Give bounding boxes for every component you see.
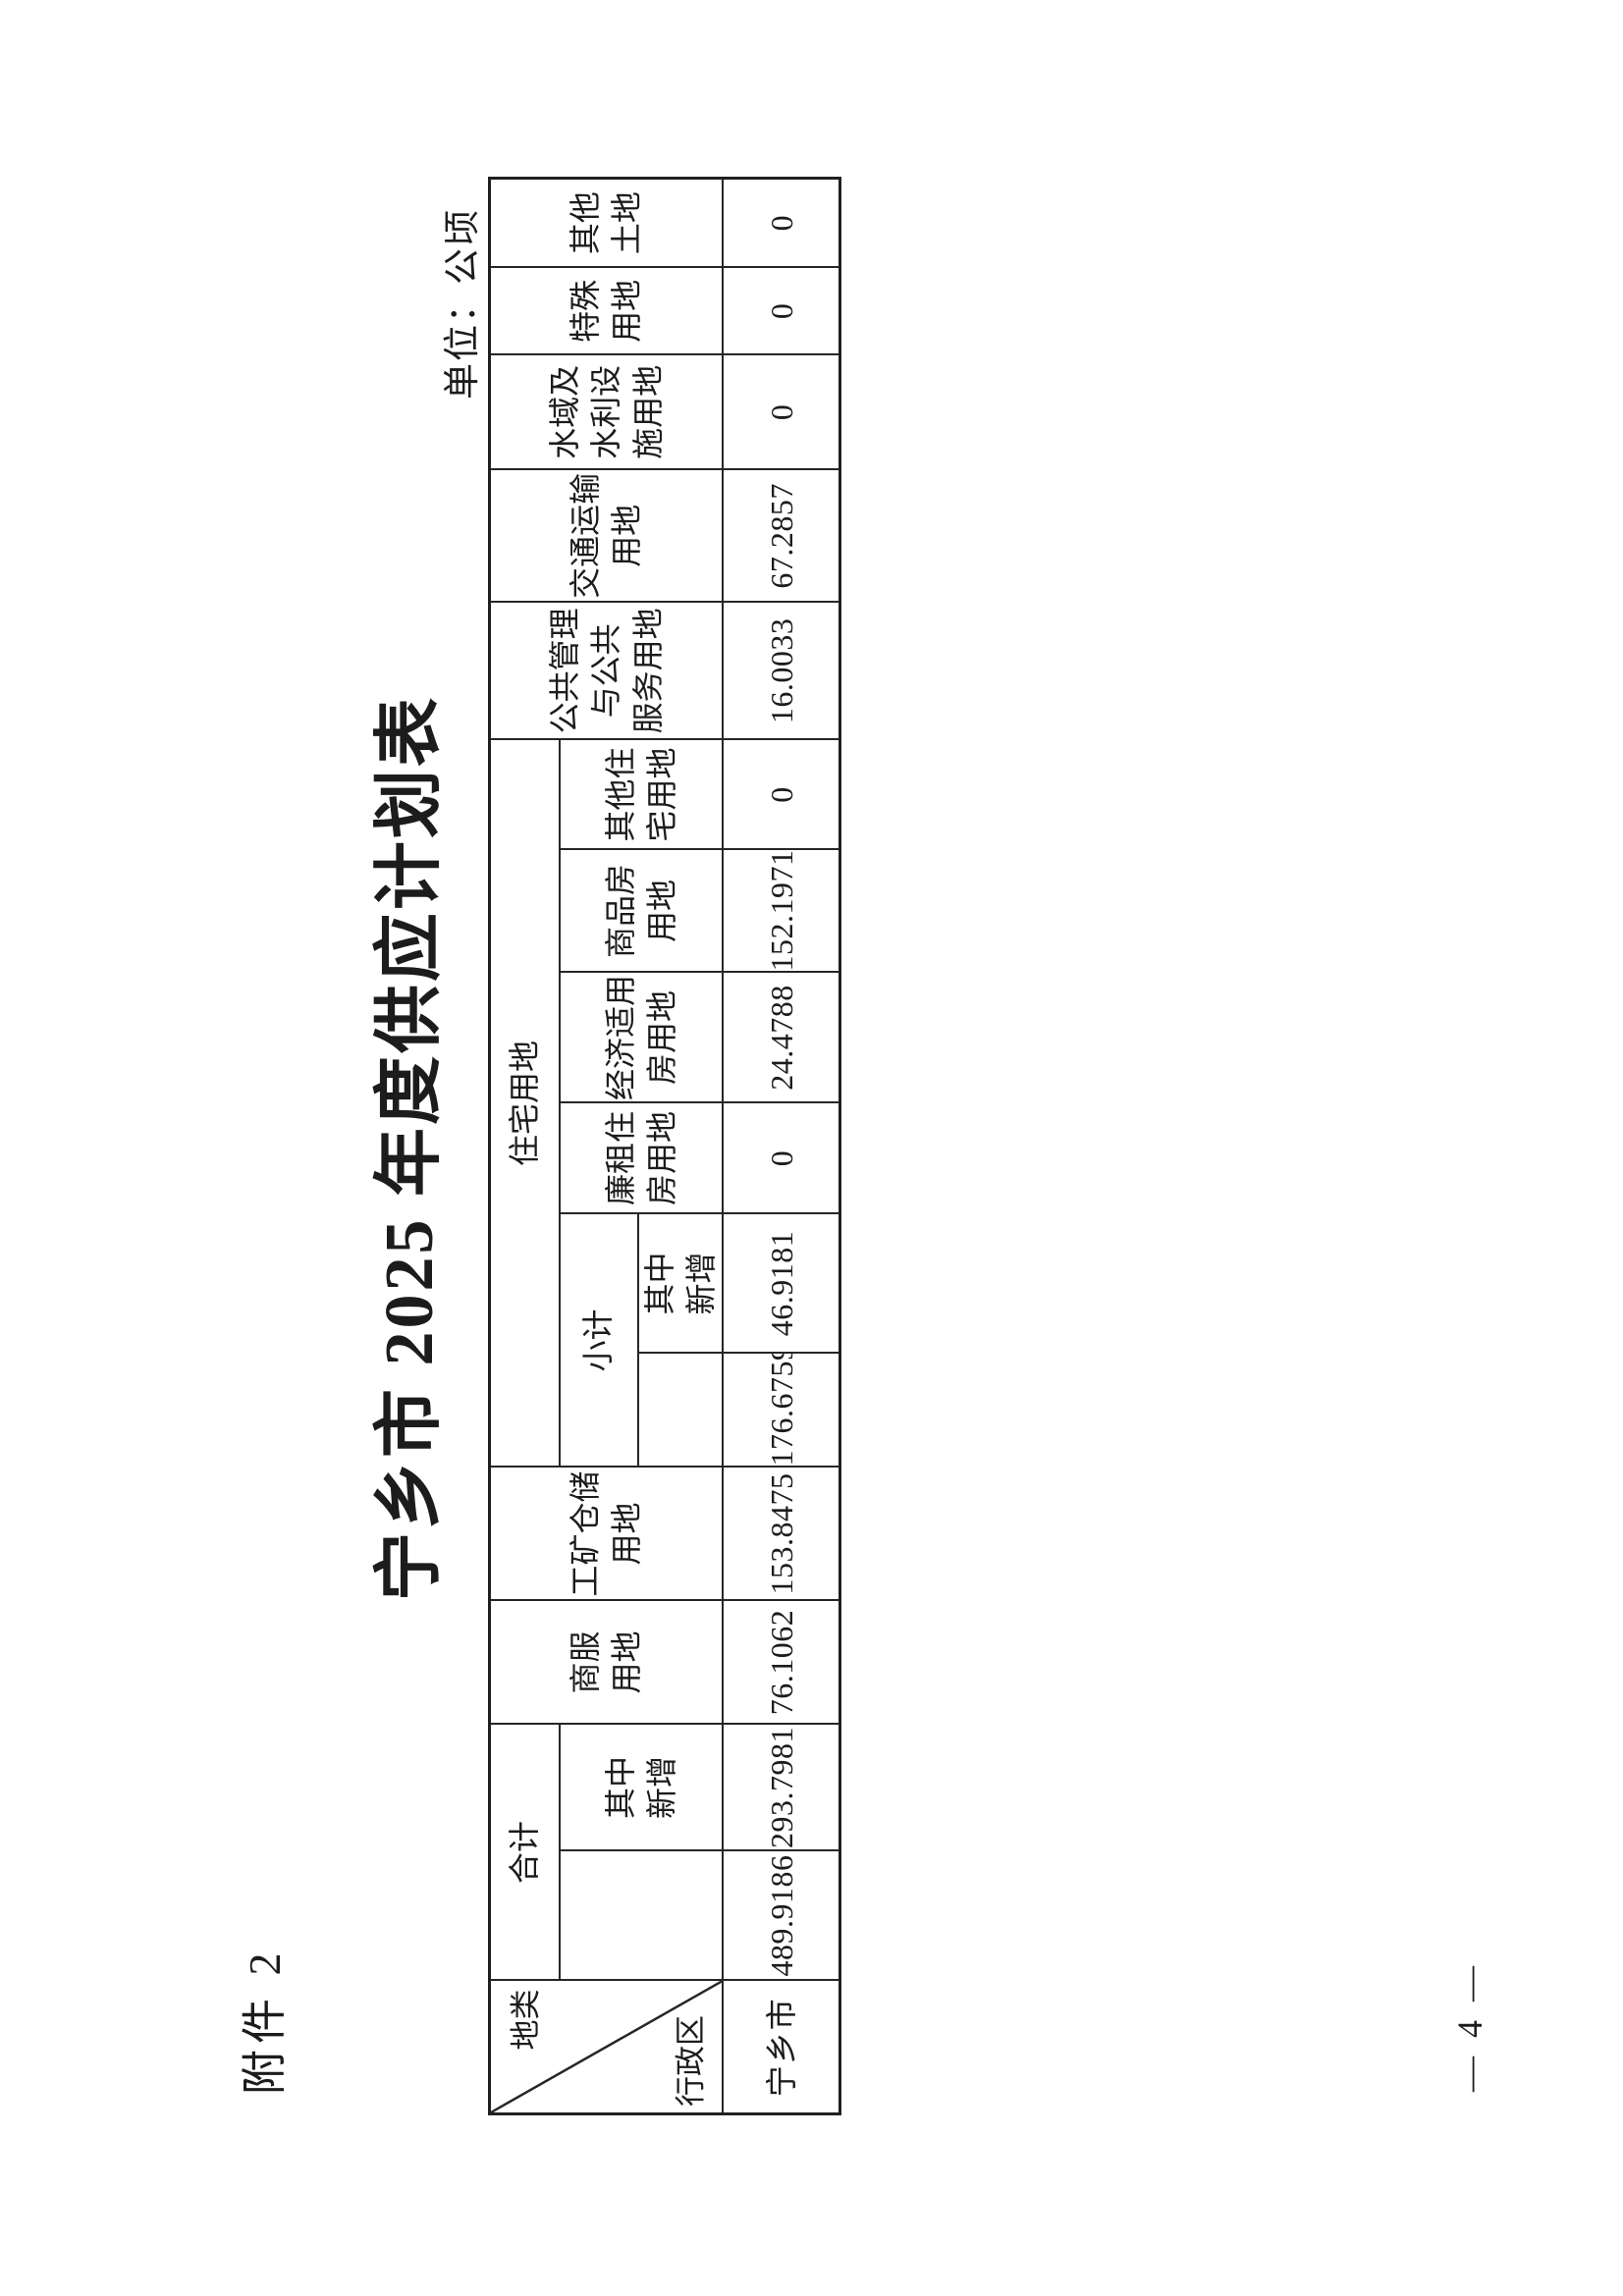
value-water-facility-land: 0 <box>723 354 840 469</box>
header-subtotal-new-added: 其中 新增 <box>638 1213 723 1353</box>
corner-label-region: 行政区 <box>672 2015 712 2107</box>
table-row: 宁乡市 489.9186 293.7981 76.1062 153.8475 1… <box>723 178 840 2113</box>
value-affordable-housing-land: 24.4788 <box>723 972 840 1102</box>
value-transport-land: 67.2857 <box>723 469 840 602</box>
header-residential-land-group: 住宅用地 <box>490 739 560 1467</box>
value-other-residential-land: 0 <box>723 739 840 849</box>
diagonal-cell: 地类 行政区 <box>491 1982 722 2113</box>
scanned-page: 附件 2 宁乡市 2025 年度供应计划表 单位：公顷 <box>0 0 1623 2296</box>
rotated-landscape-content: 附件 2 宁乡市 2025 年度供应计划表 单位：公顷 <box>0 0 1623 2296</box>
corner-cell: 地类 行政区 <box>490 1981 723 2114</box>
value-total: 489.9186 <box>723 1851 840 1981</box>
header-total-new-added: 其中 新增 <box>560 1724 723 1850</box>
header-transport-land: 交通运输 用地 <box>490 469 723 602</box>
value-industrial-storage-land: 153.8475 <box>723 1467 840 1600</box>
value-total-new-added: 293.7981 <box>723 1724 840 1850</box>
header-public-service-land: 公共管理 与公共 服务用地 <box>490 602 723 739</box>
header-other-residential-land: 其他住 宅用地 <box>560 739 723 849</box>
header-industrial-storage-land: 工矿仓储 用地 <box>490 1467 723 1600</box>
header-other-land: 其他 土地 <box>490 178 723 267</box>
header-subtotal: 小计 <box>560 1213 638 1467</box>
header-water-facility-land: 水域及 水利设 施用地 <box>490 354 723 469</box>
header-affordable-housing-land: 经济适用 房用地 <box>560 972 723 1102</box>
header-total-blank <box>560 1851 723 1981</box>
value-public-service-land: 16.0033 <box>723 602 840 739</box>
header-total: 合计 <box>490 1724 560 1980</box>
value-low-rent-housing-land: 0 <box>723 1102 840 1213</box>
header-commodity-housing-land: 商品房 用地 <box>560 849 723 972</box>
value-subtotal: 176.6759 <box>723 1353 840 1467</box>
header-low-rent-housing-land: 廉租住 房用地 <box>560 1102 723 1213</box>
attachment-label: 附件 2 <box>229 1948 294 2096</box>
page-number: — 4 — <box>1449 1961 1490 2092</box>
corner-label-land-type: 地类 <box>507 1990 547 2051</box>
value-subtotal-new-added: 46.9181 <box>723 1213 840 1353</box>
value-commodity-housing-land: 152.1971 <box>723 849 840 972</box>
header-row-1: 地类 行政区 合计 商服 用地 工矿仓储 用地 住宅用地 公共管理 与公共 服务… <box>490 178 560 2113</box>
unit-label: 单位：公顷 <box>432 208 485 400</box>
header-special-land: 特殊 用地 <box>490 267 723 354</box>
header-subtotal-blank <box>638 1353 723 1467</box>
value-special-land: 0 <box>723 267 840 354</box>
value-other-land: 0 <box>723 178 840 267</box>
header-commercial-land: 商服 用地 <box>490 1600 723 1724</box>
value-commercial-land: 76.1062 <box>723 1600 840 1724</box>
supply-plan-table: 地类 行政区 合计 商服 用地 工矿仓储 用地 住宅用地 公共管理 与公共 服务… <box>488 177 841 2115</box>
value-region: 宁乡市 <box>723 1981 840 2114</box>
